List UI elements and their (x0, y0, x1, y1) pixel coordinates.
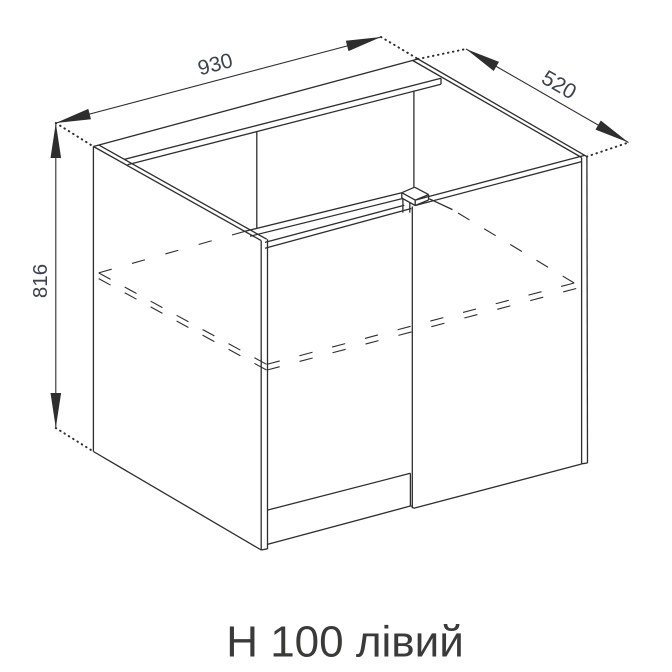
svg-text:930: 930 (195, 49, 235, 80)
svg-text:816: 816 (29, 264, 52, 298)
svg-text:520: 520 (537, 66, 580, 105)
svg-text:Н 100 лівий: Н 100 лівий (226, 618, 464, 667)
